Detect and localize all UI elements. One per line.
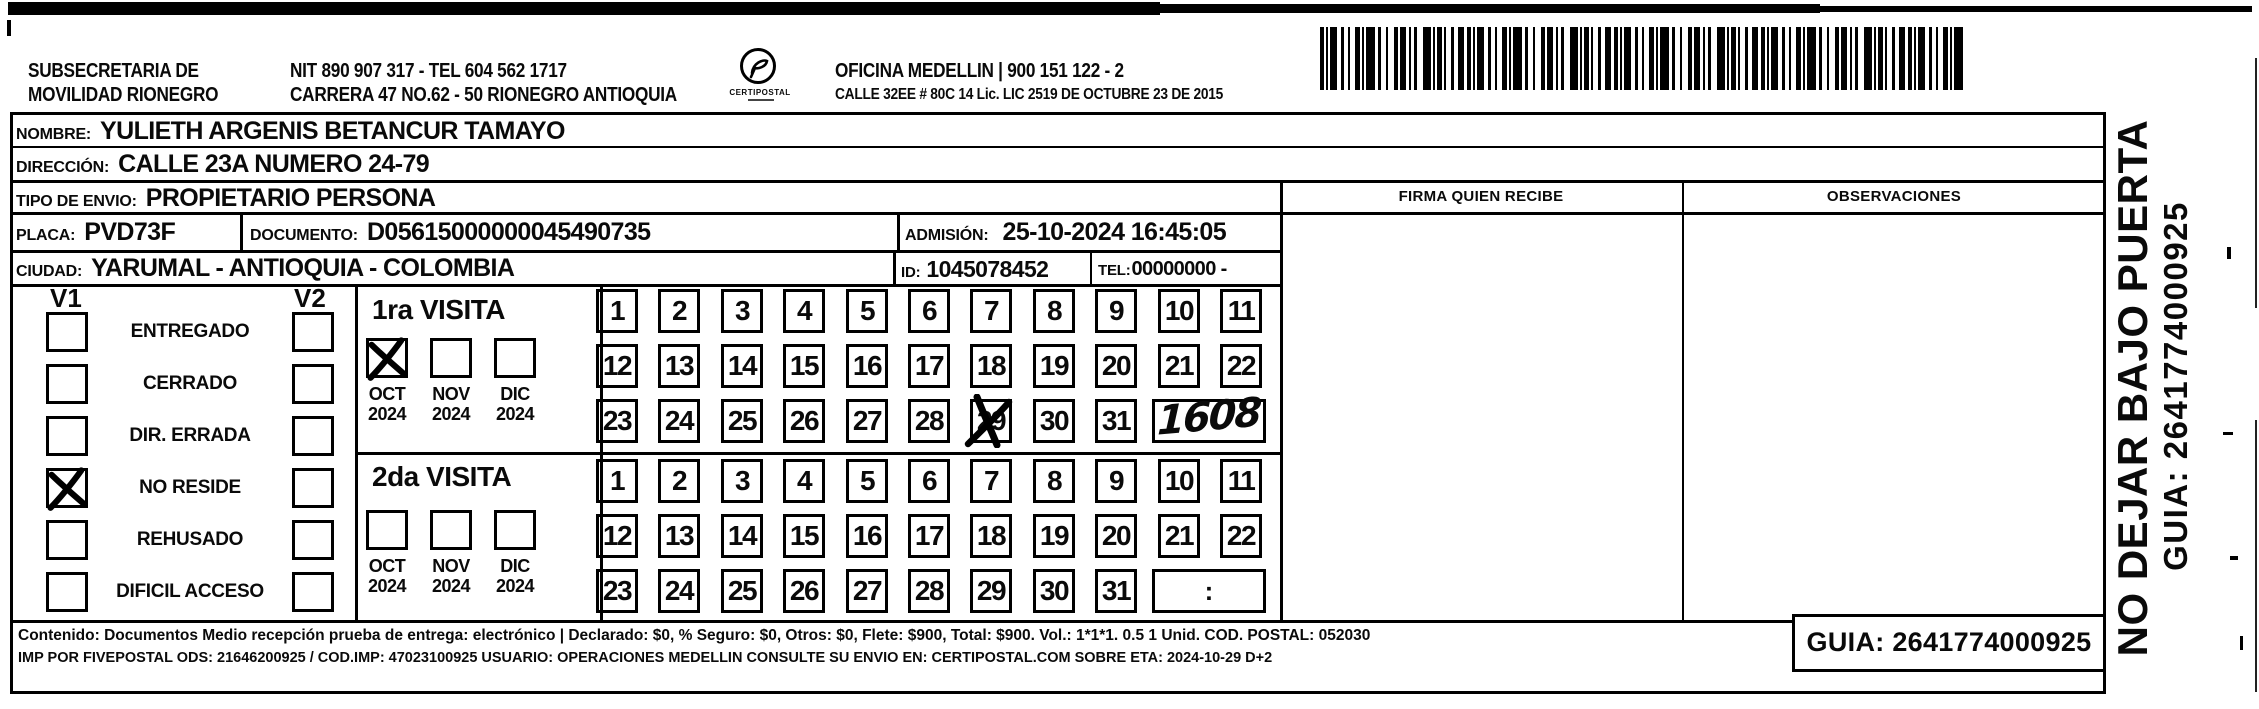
visit-2-year-label: 2024 bbox=[422, 576, 480, 597]
barcode-bar bbox=[1827, 27, 1829, 90]
barcode-bar bbox=[1423, 27, 1431, 90]
visit-2-day-20[interactable]: 20 bbox=[1095, 514, 1137, 558]
direccion-row: DIRECCIÓN: CALLE 23A NUMERO 24-79 bbox=[16, 150, 429, 179]
barcode-bar bbox=[1761, 27, 1765, 90]
visit-2-day-21[interactable]: 21 bbox=[1158, 514, 1200, 558]
visit-1-month-label: NOV bbox=[422, 384, 480, 405]
admision-value: 25-10-2024 16:45:05 bbox=[1003, 218, 1227, 247]
v2-checkbox-dificil-acceso[interactable] bbox=[292, 572, 334, 612]
scan-artifact bbox=[2240, 636, 2243, 650]
v2-checkbox-entregado[interactable] bbox=[292, 312, 334, 352]
barcode-bar bbox=[1950, 27, 1952, 90]
side-guia-number: GUIA: 2641774000925 bbox=[2157, 201, 2195, 571]
table-line bbox=[10, 212, 2106, 215]
visit-1-day-10[interactable]: 10 bbox=[1158, 289, 1200, 333]
barcode-bar bbox=[1598, 27, 1601, 90]
barcode-bar bbox=[1386, 27, 1388, 90]
visit-1-day-26[interactable]: 26 bbox=[783, 399, 825, 443]
visit-1-day-31[interactable]: 31 bbox=[1095, 399, 1137, 443]
scan-artifact bbox=[2230, 556, 2238, 560]
documento-label: DOCUMENTO: bbox=[250, 227, 358, 245]
table-line bbox=[1090, 250, 1092, 287]
barcode-bar bbox=[1561, 27, 1564, 90]
v1-column-header: V1 bbox=[50, 283, 82, 314]
barcode-bar bbox=[1533, 27, 1535, 90]
barcode-bar bbox=[1936, 27, 1938, 90]
barcode-bar bbox=[1864, 27, 1872, 90]
visit-1-month-checkbox-dic[interactable] bbox=[494, 338, 536, 378]
barcode-bar bbox=[1547, 27, 1553, 90]
v1-checkbox-dir-errada[interactable] bbox=[46, 416, 88, 456]
v1-checkbox-rehusado[interactable] bbox=[46, 520, 88, 560]
barcode-bar bbox=[1635, 27, 1638, 90]
barcode-bar bbox=[1458, 27, 1464, 90]
barcode-bar bbox=[1803, 27, 1805, 90]
tipo-envio-value: PROPIETARIO PERSONA bbox=[146, 184, 436, 213]
barcode-bar bbox=[1473, 27, 1475, 90]
visit-2-day-5[interactable]: 5 bbox=[846, 459, 888, 503]
visit-1-month-label: OCT bbox=[358, 384, 416, 405]
sender-org-line2: MOVILIDAD RIONEGRO bbox=[28, 84, 218, 107]
visit-1-day-25[interactable]: 25 bbox=[721, 399, 763, 443]
barcode-bar bbox=[1477, 27, 1484, 90]
barcode-bar bbox=[1892, 27, 1895, 90]
barcode-bar bbox=[1841, 27, 1847, 90]
table-line bbox=[2103, 112, 2106, 694]
visit-2-day-18[interactable]: 18 bbox=[970, 514, 1012, 558]
table-line bbox=[10, 180, 2106, 183]
v2-column-header: V2 bbox=[294, 283, 326, 314]
barcode-bar bbox=[1708, 27, 1711, 90]
barcode-bar bbox=[1362, 27, 1364, 90]
nombre-label: NOMBRE: bbox=[16, 126, 91, 144]
barcode-bar bbox=[1355, 27, 1360, 90]
nombre-row: NOMBRE: YULIETH ARGENIS BETANCUR TAMAYO bbox=[16, 117, 565, 146]
visit-2-year-label: 2024 bbox=[358, 576, 416, 597]
no-dejar-bajo-puerta-note: NO DEJAR BAJO PUERTA bbox=[2109, 120, 2157, 657]
courier-delivery-form: SUBSECRETARIA DE MOVILIDAD RIONEGRO NIT … bbox=[0, 0, 2259, 709]
barcode-bar bbox=[1660, 27, 1669, 90]
visit-1-day-24[interactable]: 24 bbox=[658, 399, 700, 443]
barcode-bar bbox=[1444, 27, 1446, 90]
visit-2-day-8[interactable]: 8 bbox=[1033, 459, 1075, 503]
table-line bbox=[10, 112, 2106, 115]
scan-top-bar bbox=[8, 2, 1160, 15]
visit-2-day-17[interactable]: 17 bbox=[908, 514, 950, 558]
scan-artifact bbox=[2255, 420, 2257, 692]
visit-1-day-8[interactable]: 8 bbox=[1033, 289, 1075, 333]
visit-2-day-3[interactable]: 3 bbox=[721, 459, 763, 503]
barcode-bar bbox=[1918, 27, 1925, 90]
visit-1-year-label: 2024 bbox=[486, 404, 544, 425]
barcode-bar bbox=[1614, 27, 1618, 90]
visit-2-day-22[interactable]: 22 bbox=[1220, 514, 1262, 558]
visit-2-day-11[interactable]: 11 bbox=[1220, 459, 1262, 503]
visit-2-month-label: NOV bbox=[422, 556, 480, 577]
table-line bbox=[10, 146, 2106, 148]
guia-number-box: GUIA: 2641774000925 bbox=[1792, 614, 2106, 672]
table-line bbox=[10, 112, 13, 694]
barcode-bar bbox=[1433, 27, 1435, 90]
visit-2-day-10[interactable]: 10 bbox=[1158, 459, 1200, 503]
barcode-bar bbox=[1513, 27, 1522, 90]
status-label-entregado: ENTREGADO bbox=[92, 321, 288, 343]
visit-2-day-26[interactable]: 26 bbox=[783, 569, 825, 613]
visit-2-day-2[interactable]: 2 bbox=[658, 459, 700, 503]
visit-1-day-30[interactable]: 30 bbox=[1033, 399, 1075, 443]
observaciones-area[interactable] bbox=[1686, 214, 2101, 618]
barcode-bar bbox=[1541, 27, 1545, 90]
barcode-bar bbox=[1591, 27, 1593, 90]
visit-1-day-18[interactable]: 18 bbox=[970, 344, 1012, 388]
barcode-bar bbox=[1584, 27, 1589, 90]
barcode-bar bbox=[1656, 27, 1658, 90]
status-label-rehusado: REHUSADO bbox=[92, 529, 288, 551]
table-line bbox=[893, 250, 896, 287]
scan-artifact bbox=[2255, 58, 2257, 308]
barcode-bar bbox=[1525, 27, 1528, 90]
barcode-bar bbox=[1717, 27, 1725, 90]
barcode-bar bbox=[1580, 27, 1582, 90]
nombre-value: YULIETH ARGENIS BETANCUR TAMAYO bbox=[100, 117, 565, 146]
table-line bbox=[1280, 180, 1283, 623]
firma-quien-recibe-header: FIRMA QUIEN RECIBE bbox=[1283, 188, 1679, 205]
visit-1-day-17[interactable]: 17 bbox=[908, 344, 950, 388]
barcode-bar bbox=[1899, 27, 1905, 90]
footer-imp-line: IMP POR FIVEPOSTAL ODS: 21646200925 / CO… bbox=[18, 650, 1272, 666]
barcode-bar bbox=[1642, 27, 1644, 90]
visit-1-day-16[interactable]: 16 bbox=[846, 344, 888, 388]
ciudad-cell: CIUDAD: YARUMAL - ANTIOQUIA - COLOMBIA bbox=[16, 254, 514, 283]
barcode-bar bbox=[1409, 27, 1411, 90]
barcode-bar bbox=[1680, 27, 1682, 90]
barcode-bar bbox=[1394, 27, 1398, 90]
visit-1-day-9[interactable]: 9 bbox=[1095, 289, 1137, 333]
direccion-label: DIRECCIÓN: bbox=[16, 159, 109, 177]
barcode-bar bbox=[1738, 27, 1740, 90]
barcode-bar bbox=[1835, 27, 1839, 90]
visit-2-day-13[interactable]: 13 bbox=[658, 514, 700, 558]
visit-2-month-checkbox-oct[interactable] bbox=[366, 510, 408, 550]
barcode-bar bbox=[1320, 27, 1324, 90]
handwritten-time-entry: 1608 bbox=[1157, 394, 1261, 439]
visit-1-day-19[interactable]: 19 bbox=[1033, 344, 1075, 388]
scan-artifact bbox=[2223, 432, 2233, 435]
visit-2-day-27[interactable]: 27 bbox=[846, 569, 888, 613]
barcode-bar bbox=[1745, 27, 1748, 90]
placa-label: PLACA: bbox=[16, 227, 75, 245]
observaciones-header: OBSERVACIONES bbox=[1685, 188, 2103, 205]
documento-value: D05615000000045490735 bbox=[367, 218, 651, 247]
visit-1-day-6[interactable]: 6 bbox=[908, 289, 950, 333]
ciudad-value: YARUMAL - ANTIOQUIA - COLOMBIA bbox=[91, 254, 514, 283]
visit-2-day-15[interactable]: 15 bbox=[783, 514, 825, 558]
v2-checkbox-no-reside[interactable] bbox=[292, 468, 334, 508]
certipostal-logo-icon bbox=[740, 48, 776, 84]
status-label-dir-errada: DIR. ERRADA bbox=[92, 425, 288, 447]
barcode-bar bbox=[1366, 27, 1375, 90]
visit-1-month-label: DIC bbox=[486, 384, 544, 405]
visit-1-day-21[interactable]: 21 bbox=[1158, 344, 1200, 388]
status-label-dificil-acceso: DIFICIL ACCESO bbox=[92, 581, 288, 603]
barcode-bar bbox=[1767, 27, 1769, 90]
visit-2-day-4[interactable]: 4 bbox=[783, 459, 825, 503]
visit-1-day-14[interactable]: 14 bbox=[721, 344, 763, 388]
visit-2-day-14[interactable]: 14 bbox=[721, 514, 763, 558]
visit-1-day-7[interactable]: 7 bbox=[970, 289, 1012, 333]
visit-2-month-checkbox-dic[interactable] bbox=[494, 510, 536, 550]
visit-1-month-checkbox-nov[interactable] bbox=[430, 338, 472, 378]
visit-2-day-9[interactable]: 9 bbox=[1095, 459, 1137, 503]
table-line bbox=[10, 284, 1283, 287]
barcode-bar bbox=[1556, 27, 1558, 90]
sender-address-line: CARRERA 47 NO.62 - 50 RIONEGRO ANTIOQUIA bbox=[290, 84, 677, 107]
barcode-bar bbox=[1796, 27, 1801, 90]
scan-top-bar bbox=[1160, 4, 1820, 13]
barcode-bar bbox=[1771, 27, 1778, 90]
table-line bbox=[897, 212, 900, 253]
barcode-bar bbox=[1943, 27, 1948, 90]
visit-1-day-20[interactable]: 20 bbox=[1095, 344, 1137, 388]
barcode-bar bbox=[1727, 27, 1729, 90]
tipo-envio-label: TIPO DE ENVIO: bbox=[16, 193, 137, 211]
visit-2-day-6[interactable]: 6 bbox=[908, 459, 950, 503]
visit-2-day-25[interactable]: 25 bbox=[721, 569, 763, 613]
barcode-bar bbox=[1326, 27, 1328, 90]
visit-2-month-label: DIC bbox=[486, 556, 544, 577]
visit-1-day-4[interactable]: 4 bbox=[783, 289, 825, 333]
v1-checkbox-cerrado[interactable] bbox=[46, 364, 88, 404]
footer-content-line: Contenido: Documentos Medio recepción pr… bbox=[18, 627, 1370, 645]
visit-1-day-2[interactable]: 2 bbox=[658, 289, 700, 333]
barcode-bar bbox=[1400, 27, 1406, 90]
visit-1-day-11[interactable]: 11 bbox=[1220, 289, 1262, 333]
table-line bbox=[10, 691, 2106, 694]
ciudad-label: CIUDAD: bbox=[16, 263, 82, 281]
barcode-bar bbox=[1437, 27, 1442, 90]
visit-2-day-29[interactable]: 29 bbox=[970, 569, 1012, 613]
visit-2-day-19[interactable]: 19 bbox=[1033, 514, 1075, 558]
tipo-envio-row: TIPO DE ENVIO: PROPIETARIO PERSONA bbox=[16, 184, 435, 213]
visit-1-year-label: 2024 bbox=[422, 404, 480, 425]
barcode-bar bbox=[1789, 27, 1791, 90]
barcode-bar bbox=[1874, 27, 1876, 90]
barcode-bar bbox=[1954, 27, 1963, 90]
barcode-bar bbox=[1509, 27, 1511, 90]
barcode-bar bbox=[1467, 27, 1471, 90]
barcode-bar bbox=[1570, 27, 1578, 90]
barcode-bar bbox=[1649, 27, 1654, 90]
barcode-bar bbox=[1819, 27, 1822, 90]
visit-1-day-13[interactable]: 13 bbox=[658, 344, 700, 388]
scan-artifact bbox=[7, 20, 11, 36]
barcode-bar bbox=[1488, 27, 1491, 90]
visit-2-day-31[interactable]: 31 bbox=[1095, 569, 1137, 613]
visit-1-day-15[interactable]: 15 bbox=[783, 344, 825, 388]
visit-1-time-box[interactable]: 1608 bbox=[1152, 399, 1266, 443]
table-line bbox=[240, 212, 243, 253]
barcode-bar bbox=[1502, 27, 1507, 90]
barcode-bar bbox=[1850, 27, 1852, 90]
table-line bbox=[1682, 180, 1684, 623]
scan-artifact bbox=[2227, 247, 2231, 259]
sender-nit-line: NIT 890 907 317 - TEL 604 562 1717 bbox=[290, 60, 567, 83]
barcode-bar bbox=[1703, 27, 1705, 90]
visit-2-title: 2da VISITA bbox=[372, 461, 596, 493]
barcode-bar bbox=[1620, 27, 1622, 90]
visit-2-day-24[interactable]: 24 bbox=[658, 569, 700, 613]
admision-label: ADMISIÓN: bbox=[905, 227, 989, 245]
visit-2-time-box[interactable]: : bbox=[1152, 569, 1266, 613]
v1-checkbox-entregado[interactable] bbox=[46, 312, 88, 352]
time-entry-placeholder: : bbox=[1205, 576, 1214, 606]
certipostal-logo-tagline bbox=[748, 99, 774, 101]
v1-checkbox-dificil-acceso[interactable] bbox=[46, 572, 88, 612]
visit-1-day-3[interactable]: 3 bbox=[721, 289, 763, 333]
barcode-bar bbox=[1348, 27, 1350, 90]
visit-1-day-28[interactable]: 28 bbox=[908, 399, 950, 443]
visit-2-day-7[interactable]: 7 bbox=[970, 459, 1012, 503]
certipostal-logo-text: CERTIPOSTAL bbox=[722, 88, 798, 97]
barcode-bar bbox=[1672, 27, 1675, 90]
visit-2-month-label: OCT bbox=[358, 556, 416, 577]
status-label-cerrado: CERRADO bbox=[92, 373, 288, 395]
barcode-bar bbox=[1688, 27, 1692, 90]
barcode-bar bbox=[1752, 27, 1758, 90]
documento-cell: DOCUMENTO: D05615000000045490735 bbox=[250, 218, 650, 247]
placa-cell: PLACA: PVD73F bbox=[16, 218, 175, 247]
tel-cell: TEL: 00000000 - bbox=[1098, 258, 1227, 281]
status-label-no-reside: NO RESIDE bbox=[92, 477, 288, 499]
visit-2-year-label: 2024 bbox=[486, 576, 544, 597]
visit-1-year-label: 2024 bbox=[358, 404, 416, 425]
visit-1-month-checkbox-oct[interactable] bbox=[366, 338, 408, 378]
visit-1-day-5[interactable]: 5 bbox=[846, 289, 888, 333]
barcode-bar bbox=[1330, 27, 1337, 90]
visit-1-day-22[interactable]: 22 bbox=[1220, 344, 1262, 388]
office-line: OFICINA MEDELLIN | 900 151 122 - 2 bbox=[835, 60, 1124, 83]
visit-1-day-29[interactable]: 29 bbox=[970, 399, 1012, 443]
tel-label: TEL: bbox=[1098, 262, 1131, 279]
visit-2-day-16[interactable]: 16 bbox=[846, 514, 888, 558]
firma-signature-area[interactable] bbox=[1284, 214, 1679, 618]
barcode-bar bbox=[1605, 27, 1611, 90]
barcode-bar bbox=[1885, 27, 1887, 90]
shipment-barcode bbox=[1320, 27, 1968, 90]
barcode-bar bbox=[1914, 27, 1916, 90]
direccion-value: CALLE 23A NUMERO 24-79 bbox=[118, 150, 429, 179]
barcode-bar bbox=[1414, 27, 1417, 90]
v2-checkbox-cerrado[interactable] bbox=[292, 364, 334, 404]
v2-checkbox-dir-errada[interactable] bbox=[292, 416, 334, 456]
scan-top-bar bbox=[1820, 6, 2252, 12]
visit-2-day-28[interactable]: 28 bbox=[908, 569, 950, 613]
barcode-bar bbox=[1807, 27, 1816, 90]
barcode-bar bbox=[1855, 27, 1858, 90]
table-line bbox=[355, 452, 1283, 455]
sender-org-line1: SUBSECRETARIA DE bbox=[28, 60, 199, 83]
admision-cell: ADMISIÓN: 25-10-2024 16:45:05 bbox=[905, 218, 1226, 247]
id-label: ID: bbox=[901, 264, 920, 281]
barcode-bar bbox=[1782, 27, 1785, 90]
barcode-bar bbox=[1341, 27, 1344, 90]
v2-checkbox-rehusado[interactable] bbox=[292, 520, 334, 560]
id-cell: ID: 1045078452 bbox=[901, 256, 1048, 283]
license-line: CALLE 32EE # 80C 14 Lic. LIC 2519 DE OCT… bbox=[835, 86, 1223, 104]
id-value: 1045078452 bbox=[926, 256, 1048, 283]
tel-value: 00000000 - bbox=[1132, 258, 1227, 281]
visit-1-day-27[interactable]: 27 bbox=[846, 399, 888, 443]
barcode-bar bbox=[1378, 27, 1381, 90]
visit-2-day-30[interactable]: 30 bbox=[1033, 569, 1075, 613]
barcode-bar bbox=[1495, 27, 1497, 90]
visit-2-month-checkbox-nov[interactable] bbox=[430, 510, 472, 550]
barcode-bar bbox=[1731, 27, 1736, 90]
barcode-bar bbox=[1451, 27, 1454, 90]
table-line bbox=[10, 250, 1283, 253]
barcode-bar bbox=[1694, 27, 1700, 90]
barcode-bar bbox=[1878, 27, 1883, 90]
placa-value: PVD73F bbox=[84, 218, 175, 247]
barcode-bar bbox=[1929, 27, 1932, 90]
barcode-bar bbox=[1624, 27, 1631, 90]
visit-1-title: 1ra VISITA bbox=[372, 294, 596, 326]
barcode-bar bbox=[1908, 27, 1912, 90]
v1-checkbox-no-reside[interactable] bbox=[46, 468, 88, 508]
